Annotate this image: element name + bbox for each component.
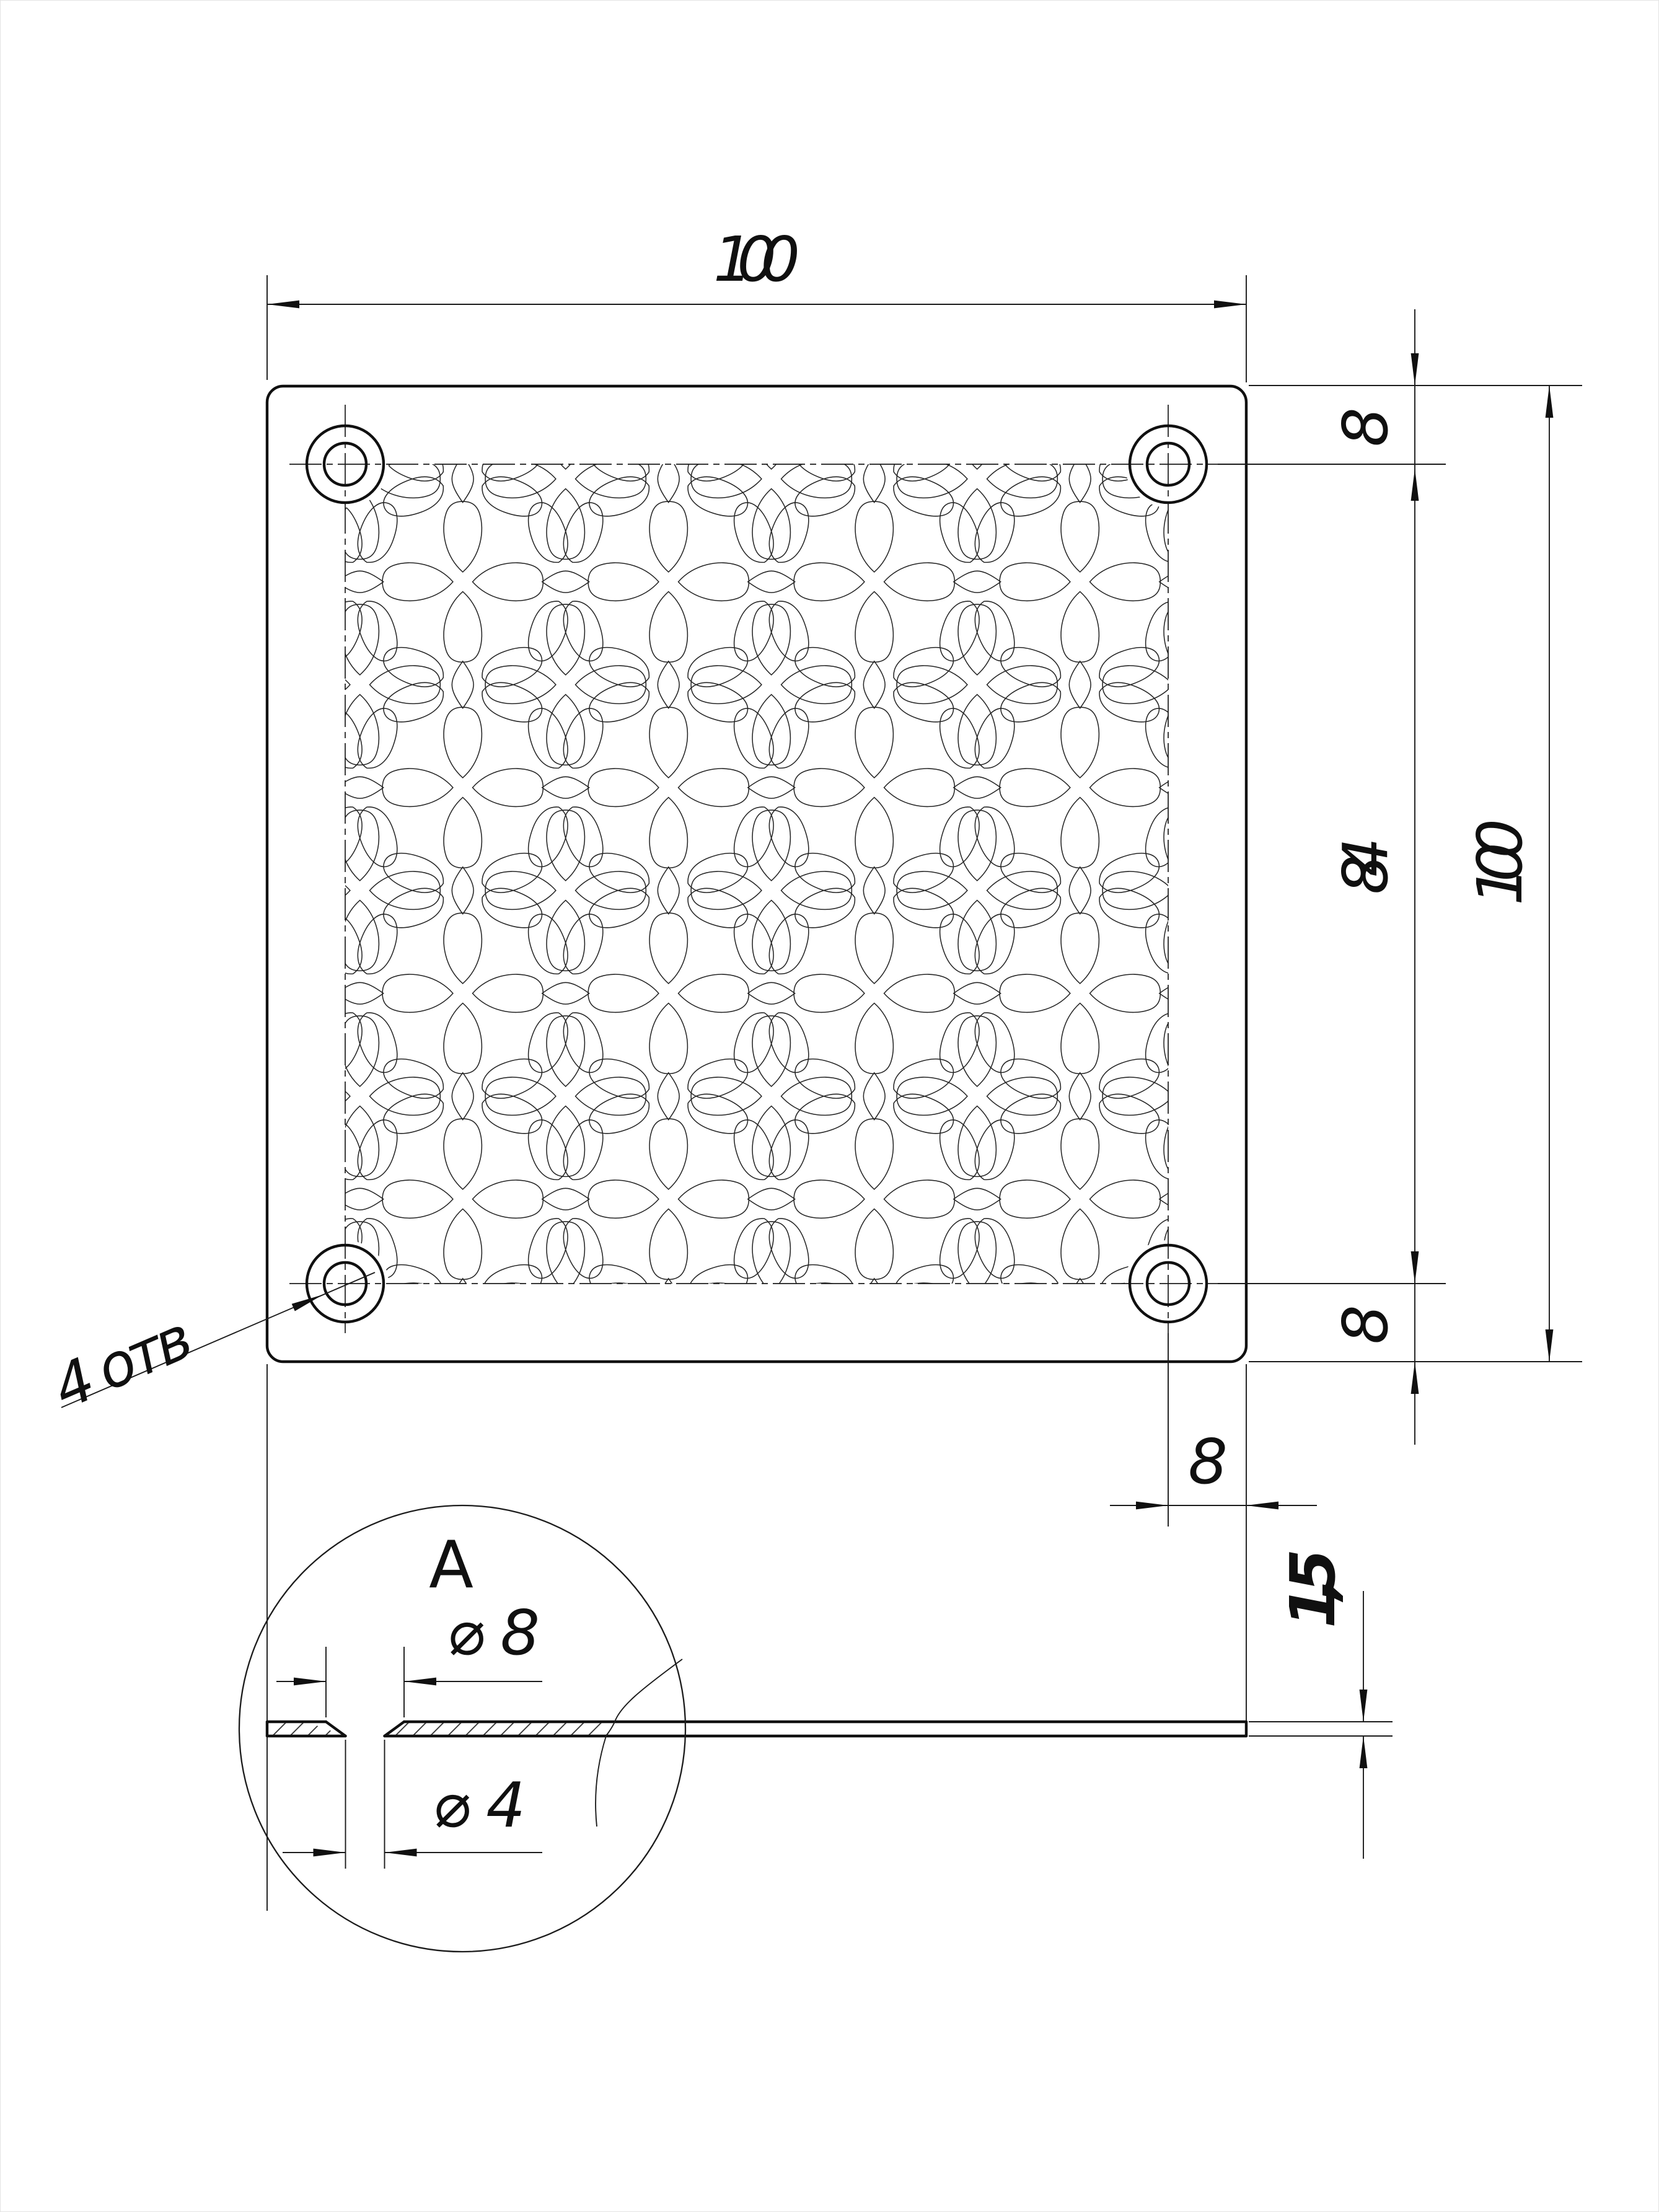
dim-hole-pitch: 84 (1329, 837, 1402, 894)
drawing-sheet: 100 8 84 8 100 8 1,5 4 отв (0, 0, 1659, 2212)
dim-hole-edge-bottom: 8 (1329, 1305, 1402, 1344)
dim-width-top: 100 (713, 223, 800, 296)
top-view (267, 386, 1246, 1362)
detail-label: А (429, 1527, 473, 1603)
dim-countersink-diameter: ⌀ 8 (447, 1597, 540, 1669)
dim-hole-edge-bottom-h: 8 (1188, 1425, 1228, 1498)
section-hatch-right (385, 1722, 615, 1736)
dim-thickness: 1,5 (1277, 1549, 1349, 1628)
dim-hole-diameter: ⌀ 4 (433, 1769, 526, 1841)
side-view (267, 1364, 1246, 1911)
engineering-drawing: 100 8 84 8 100 8 1,5 4 отв (1, 1, 1659, 2212)
dim-height-right: 100 (1464, 819, 1536, 906)
ornament-pattern (345, 464, 1168, 1284)
break-line (596, 1659, 682, 1826)
holes-note: 4 отв (43, 1302, 202, 1423)
dim-hole-edge-top: 8 (1329, 407, 1402, 447)
